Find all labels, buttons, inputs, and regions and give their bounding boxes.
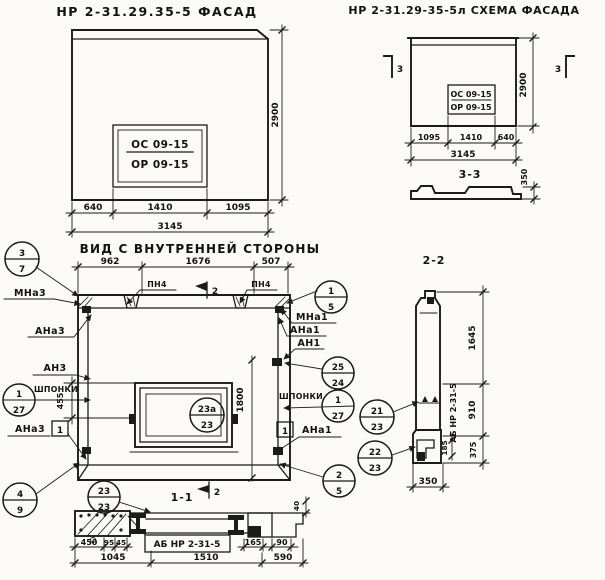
weld-mark-left-num: 1 bbox=[57, 426, 63, 436]
label-mna3-text: МНа3 bbox=[14, 288, 46, 299]
scheme-title: НР 2-31.29-35-5л СХЕМА ФАСАДА bbox=[348, 4, 579, 17]
inner-dim-455: 455 bbox=[56, 392, 65, 409]
label-shponki-left: ШПОНКИ bbox=[34, 385, 78, 394]
section-2-2-top-anchor bbox=[427, 297, 434, 304]
balloon-4-9-num: 4 bbox=[17, 490, 23, 500]
section-1-1-dim-95: 95 bbox=[104, 538, 114, 547]
pn4-right-text: ПН4 bbox=[251, 280, 271, 289]
scheme-window-label-top: ОС 09-15 bbox=[450, 90, 491, 99]
inner-dim-1800: 1800 bbox=[236, 387, 246, 412]
facade-title: НР 2-31.29.35-5 ФАСАД bbox=[56, 4, 257, 19]
balloon-1-27-right-sheet: 27 bbox=[332, 412, 344, 422]
balloon-25-24-num: 25 bbox=[332, 363, 344, 373]
balloon-3-7-num: 3 bbox=[19, 249, 25, 259]
blueprint-svg: НР 2-31.29.35-5 ФАСАД ОС 09-15 ОР 09-15 … bbox=[0, 0, 605, 580]
weld-mark-right-num: 1 bbox=[282, 427, 288, 437]
balloon-23a-sheet: 23 bbox=[201, 421, 213, 431]
paper-background bbox=[0, 0, 605, 580]
section-2-2-dim-185: 185 bbox=[440, 440, 449, 455]
balloon-23a-num: 23а bbox=[198, 405, 216, 415]
facade-dim-height: 2900 bbox=[271, 102, 281, 127]
drawing-sheet: НР 2-31.29.35-5 ФАСАД ОС 09-15 ОР 09-15 … bbox=[0, 0, 605, 580]
balloon-1-5-sheet: 5 bbox=[328, 303, 334, 313]
clip-mid-right bbox=[272, 358, 282, 366]
section-1-1-dim-165: 165 bbox=[245, 538, 262, 547]
section-marker-3-right-label: 3 bbox=[555, 65, 561, 75]
facade-dim-1410: 1410 bbox=[147, 203, 172, 213]
scheme-window-label-bottom: ОР 09-15 bbox=[450, 103, 491, 112]
facade-dim-640: 640 bbox=[84, 203, 103, 213]
profile-3-3-dim-350: 350 bbox=[520, 168, 529, 185]
section-2-2-dim-375: 375 bbox=[469, 441, 478, 458]
label-an1-text: АН1 bbox=[297, 338, 320, 349]
label-shponki-left-text: ШПОНКИ bbox=[34, 385, 78, 394]
facade-dim-total: 3145 bbox=[157, 222, 182, 232]
balloon-22-23-num: 22 bbox=[369, 448, 381, 458]
window-clip-left bbox=[129, 414, 135, 424]
section-1-1-dim-45: 45 bbox=[116, 538, 126, 547]
label-ana3-text: АНа3 bbox=[35, 326, 65, 337]
section-1-1-dim-90: 90 bbox=[276, 538, 288, 547]
balloon-21-23-sheet: 23 bbox=[371, 423, 383, 433]
scheme-dim-total: 3145 bbox=[450, 150, 475, 160]
balloon-2-5-num: 2 bbox=[336, 471, 342, 481]
balloon-21-23-num: 21 bbox=[371, 407, 383, 417]
facade-dim-1095: 1095 bbox=[225, 203, 250, 213]
balloon-3-7-sheet: 7 bbox=[19, 265, 25, 275]
section-1-1-right-block-fill bbox=[248, 526, 261, 537]
balloon-25-24-sheet: 24 bbox=[332, 379, 344, 389]
balloon-4-9-sheet: 9 bbox=[17, 506, 23, 516]
inner-dim-962: 962 bbox=[101, 257, 120, 267]
clip-top-right bbox=[275, 306, 284, 313]
section-1-1-dim-1510: 1510 bbox=[193, 553, 218, 563]
flag-2-bottom-label: 2 bbox=[214, 488, 220, 498]
label-ana1-text: АНа1 bbox=[290, 325, 320, 336]
section-1-1-label: АБ НР 2-31-5 bbox=[154, 540, 221, 550]
balloon-1-5-num: 1 bbox=[328, 287, 334, 297]
scheme-dim-1410: 1410 bbox=[460, 133, 483, 142]
inner-dim-1676: 1676 bbox=[185, 257, 210, 267]
scheme-dim-1095: 1095 bbox=[418, 133, 441, 142]
inner-dim-507: 507 bbox=[262, 257, 281, 267]
facade-window-label-bottom: ОР 09-15 bbox=[131, 159, 189, 171]
label-shponki-right-text: ШПОНКИ bbox=[279, 392, 323, 401]
section-1-1-dim-590: 590 bbox=[274, 553, 293, 563]
window-clip-right bbox=[232, 414, 238, 424]
label-shponki-right: ШПОНКИ bbox=[279, 392, 323, 401]
section-2-2-bracket-fill bbox=[417, 452, 425, 461]
facade-window-label-top: ОС 09-15 bbox=[131, 139, 189, 151]
section-marker-3-left-label: 3 bbox=[397, 65, 403, 75]
label-an3-text: АН3 bbox=[43, 363, 66, 374]
balloon-1-27-left-sheet: 27 bbox=[13, 406, 25, 416]
balloon-22-23-sheet: 23 bbox=[369, 464, 381, 474]
balloon-23-23-num: 23 bbox=[98, 487, 110, 497]
balloon-2-5-sheet: 5 bbox=[336, 487, 342, 497]
balloon-1-27-right-num: 1 bbox=[335, 396, 341, 406]
label-mna1-text: МНа1 bbox=[296, 312, 328, 323]
clip-bottom-left bbox=[82, 447, 91, 454]
clip-top-left bbox=[82, 306, 91, 313]
section-2-2-dim-910: 910 bbox=[468, 401, 478, 420]
scheme-dim-640: 640 bbox=[498, 133, 515, 142]
section-1-1-title: 1-1 bbox=[171, 491, 194, 504]
label-ana1-bottom-text: АНа1 bbox=[302, 425, 332, 436]
inner-view-title: ВИД С ВНУТРЕННЕЙ СТОРОНЫ bbox=[80, 241, 321, 256]
section-1-1-dim-1045: 1045 bbox=[100, 553, 125, 563]
section-1-1-dim-450: 450 bbox=[81, 538, 98, 547]
pn4-left-text: ПН4 bbox=[147, 280, 167, 289]
label-ana3-bottom-text: АНа3 bbox=[15, 424, 45, 435]
section-2-2-dim-350: 350 bbox=[419, 477, 438, 487]
section-2-2-title: 2-2 bbox=[423, 254, 446, 267]
scheme-dim-height: 2900 bbox=[519, 72, 529, 97]
section-2-2-dim-1645: 1645 bbox=[468, 325, 478, 350]
section-1-1-dim-40: 40 bbox=[292, 501, 301, 511]
balloon-1-27-left-num: 1 bbox=[16, 390, 22, 400]
profile-3-3-title: 3-3 bbox=[459, 168, 482, 181]
section-2-2-vertical-label: АБ НР 2-31-5 bbox=[449, 383, 458, 443]
